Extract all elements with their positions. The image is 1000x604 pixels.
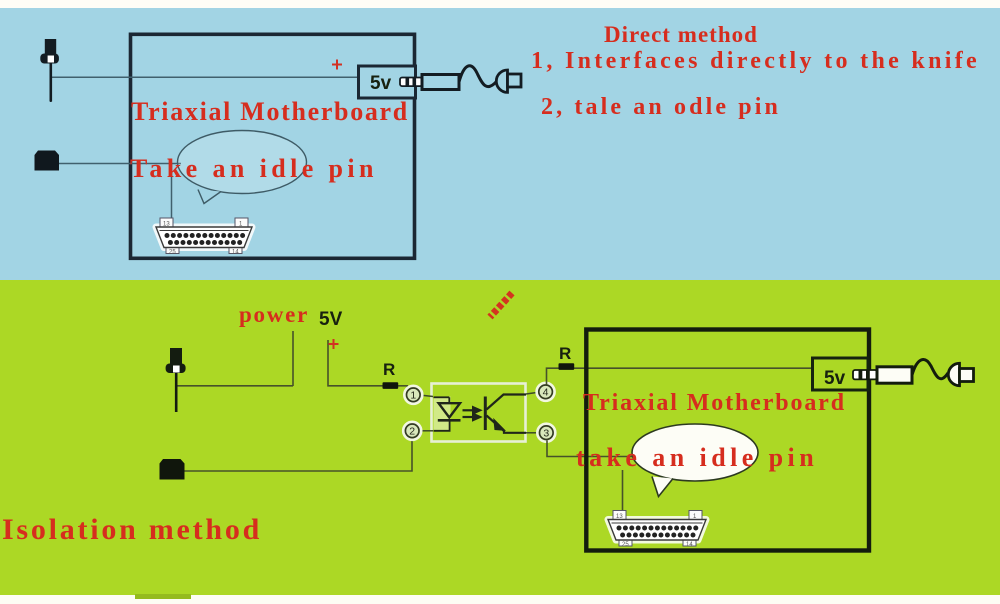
svg-text:14: 14 xyxy=(232,250,239,256)
svg-text:3: 3 xyxy=(543,428,549,440)
svg-text:4: 4 xyxy=(543,387,549,399)
svg-text:14: 14 xyxy=(686,542,693,548)
svg-text:25: 25 xyxy=(169,250,176,256)
svg-text:25: 25 xyxy=(622,542,629,548)
svg-text:1: 1 xyxy=(410,390,416,402)
svg-text:2: 2 xyxy=(409,426,415,438)
